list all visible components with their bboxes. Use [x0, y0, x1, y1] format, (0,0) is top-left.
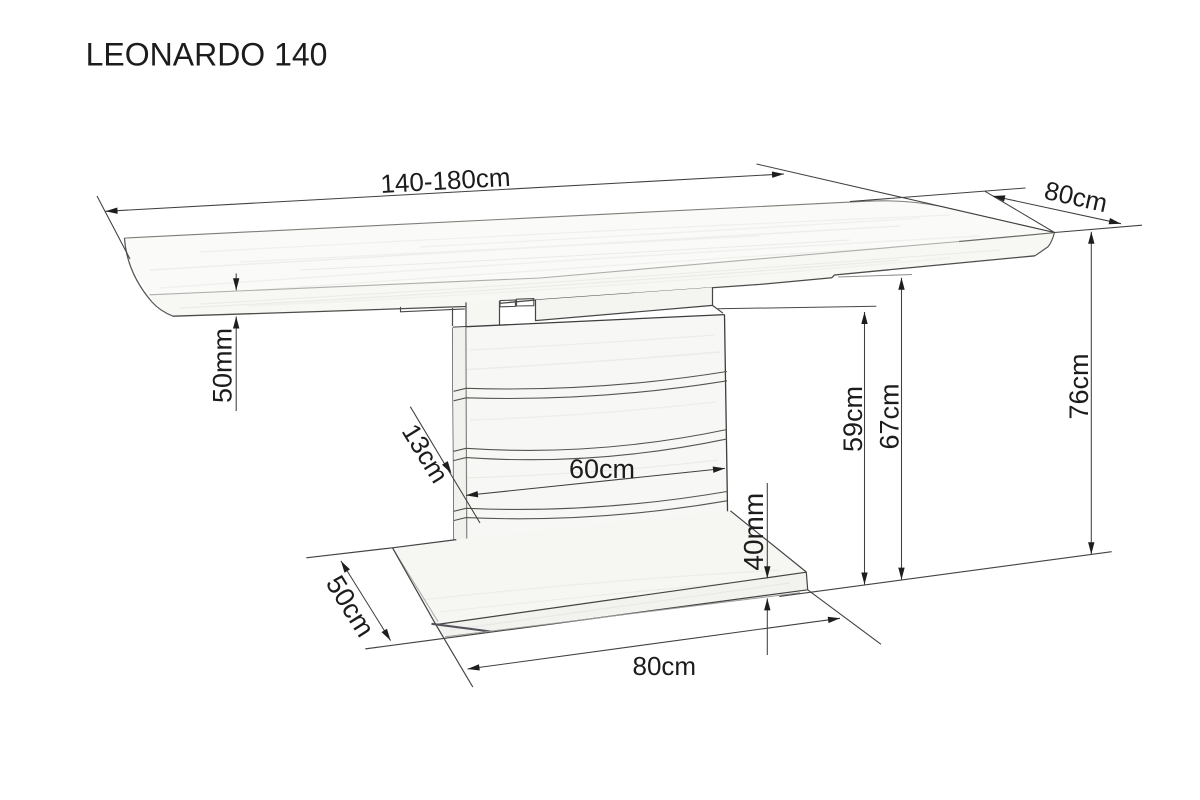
svg-text:67cm: 67cm — [875, 383, 905, 449]
svg-text:80cm: 80cm — [633, 651, 697, 681]
svg-text:60cm: 60cm — [569, 454, 635, 484]
svg-text:76cm: 76cm — [1064, 353, 1094, 419]
svg-text:50mm: 50mm — [208, 328, 238, 403]
svg-text:40mm: 40mm — [738, 493, 769, 571]
svg-text:LEONARDO 140: LEONARDO 140 — [86, 36, 328, 72]
svg-text:59cm: 59cm — [838, 386, 868, 452]
